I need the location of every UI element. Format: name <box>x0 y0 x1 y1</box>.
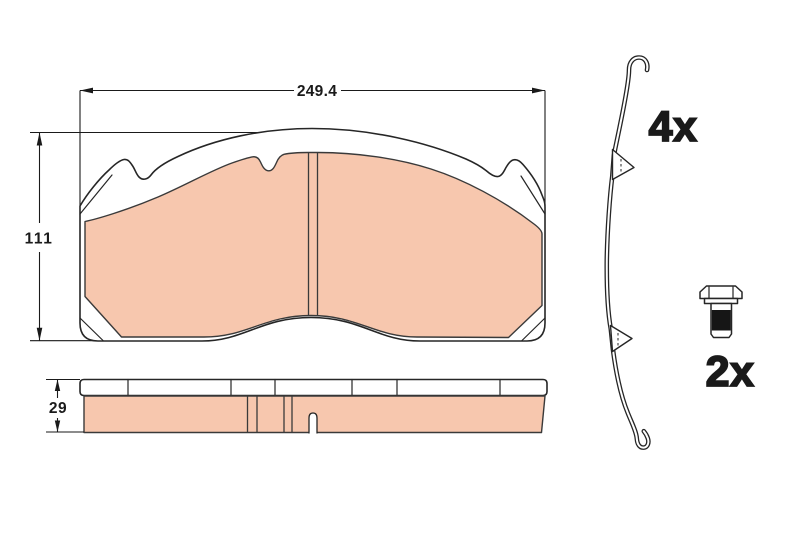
backing-plate-side <box>80 380 547 396</box>
arrow-left-icon <box>80 88 93 94</box>
height-dimension-label: 111 <box>25 231 54 248</box>
dimension-thickness: 29 <box>46 380 84 433</box>
wear-indicator-spring: 4x <box>607 58 698 448</box>
bolt-quantity-label: 2x <box>706 348 755 396</box>
arrow-up-icon <box>55 380 60 392</box>
brake-pad-diagram: 249.4 111 <box>0 0 800 533</box>
bolt-head <box>700 286 742 299</box>
width-dimension-label: 249.4 <box>297 83 337 100</box>
diagram-svg: 249.4 111 <box>0 0 800 533</box>
wear-slot <box>309 413 317 434</box>
spring-tab-lower <box>611 326 633 352</box>
spring-tab-upper <box>613 150 635 180</box>
arrow-right-icon <box>532 88 545 94</box>
brake-pad-front-view <box>80 129 545 342</box>
thickness-dimension-label: 29 <box>49 400 67 417</box>
arrow-down-icon <box>37 328 43 341</box>
spring-wire <box>607 58 649 448</box>
arrow-up-icon <box>37 133 43 146</box>
bolt-thread <box>712 310 731 331</box>
spring-quantity-label: 4x <box>649 103 698 151</box>
brake-pad-side-view <box>80 380 547 434</box>
arrow-down-icon <box>55 421 60 433</box>
mounting-bolt: 2x <box>700 286 754 396</box>
